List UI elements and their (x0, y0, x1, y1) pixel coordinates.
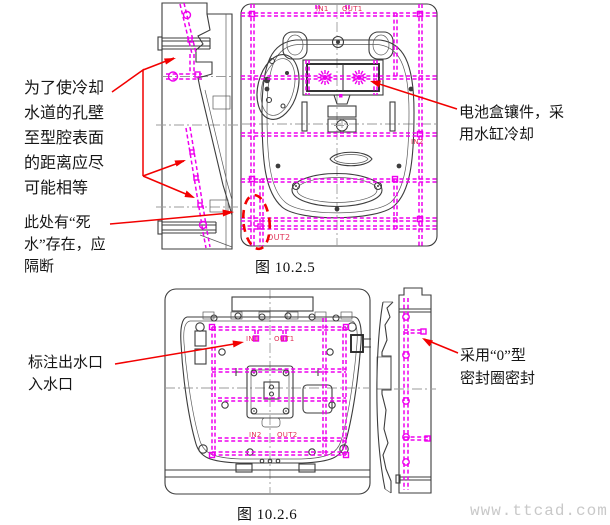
fig1-plan-view: IN1 OUT1 IN2 OUT2 (241, 4, 437, 246)
annotation-line: 水”存在，应 (24, 234, 124, 256)
fig1-port-label-out2: OUT2 (267, 233, 290, 242)
annotation-line: 的距离应尽 (24, 151, 120, 176)
water-fountain-icon (318, 70, 333, 85)
o-ring-icon (403, 459, 409, 465)
o-ring-icon (403, 314, 409, 320)
fig2-port-label-out2: OUT2 (277, 431, 298, 439)
annotation-line: 入水口 (28, 374, 118, 396)
annotation-dead-water: 此处有“死 水”存在，应 隔断 (24, 212, 124, 278)
annotation-line: 采用“0”型 (460, 345, 560, 368)
annotation-line: 至型腔表面 (24, 126, 120, 151)
annotation-line: 可能相等 (24, 176, 120, 201)
annotation-line: 隔断 (24, 256, 124, 278)
water-fountain-icon (352, 70, 367, 85)
fig1-port-label-in2: IN2 (411, 138, 424, 146)
annotation-cooling-wall: 为了使冷却 水道的孔壁 至型腔表面 的距离应尽 可能相等 (24, 76, 120, 201)
fig1-boss-ellipse (251, 50, 306, 124)
annotation-line: 为了使冷却 (24, 76, 120, 101)
fig2-side-view (377, 288, 436, 493)
fig2-side-coolant-lines (403, 298, 430, 490)
fig2-plan-view: IN1 OUT1 IN2 OUT2 (165, 289, 371, 494)
fig1-port-label-in1: IN1 (316, 5, 329, 13)
fig1-side-coolant-lines (166, 3, 210, 248)
fig1-caption: 图 10.2.5 (255, 256, 315, 277)
watermark: www.ttcad.com (470, 502, 608, 520)
annotation-battery-insert: 电池盒镶件，采 用水缸冷却 (459, 102, 579, 146)
annotation-line: 密封圈密封 (460, 368, 560, 391)
fig2-caption: 图 10.2.6 (237, 503, 297, 524)
dead-water-marker (241, 194, 273, 250)
annotation-line: 标注出水口 (28, 352, 118, 374)
annotation-line: 此处有“死 (24, 212, 124, 234)
annotation-line: 水道的孔壁 (24, 101, 120, 126)
fig2-port-label-in2: IN2 (249, 431, 262, 439)
annotation-ports: 标注出水口 入水口 (28, 352, 118, 396)
o-ring-icon (403, 352, 409, 358)
fig2-port-label-out1: OUT1 (274, 335, 295, 343)
fig1-port-label-out1: OUT1 (342, 5, 363, 13)
annotation-seal: 采用“0”型 密封圈密封 (460, 345, 560, 391)
document-page: IN1 OUT1 IN2 OUT2 (0, 0, 610, 525)
fig2-port-label-in1: IN1 (246, 335, 259, 343)
annotation-line: 电池盒镶件，采 (459, 102, 579, 124)
annotation-line: 用水缸冷却 (459, 124, 579, 146)
